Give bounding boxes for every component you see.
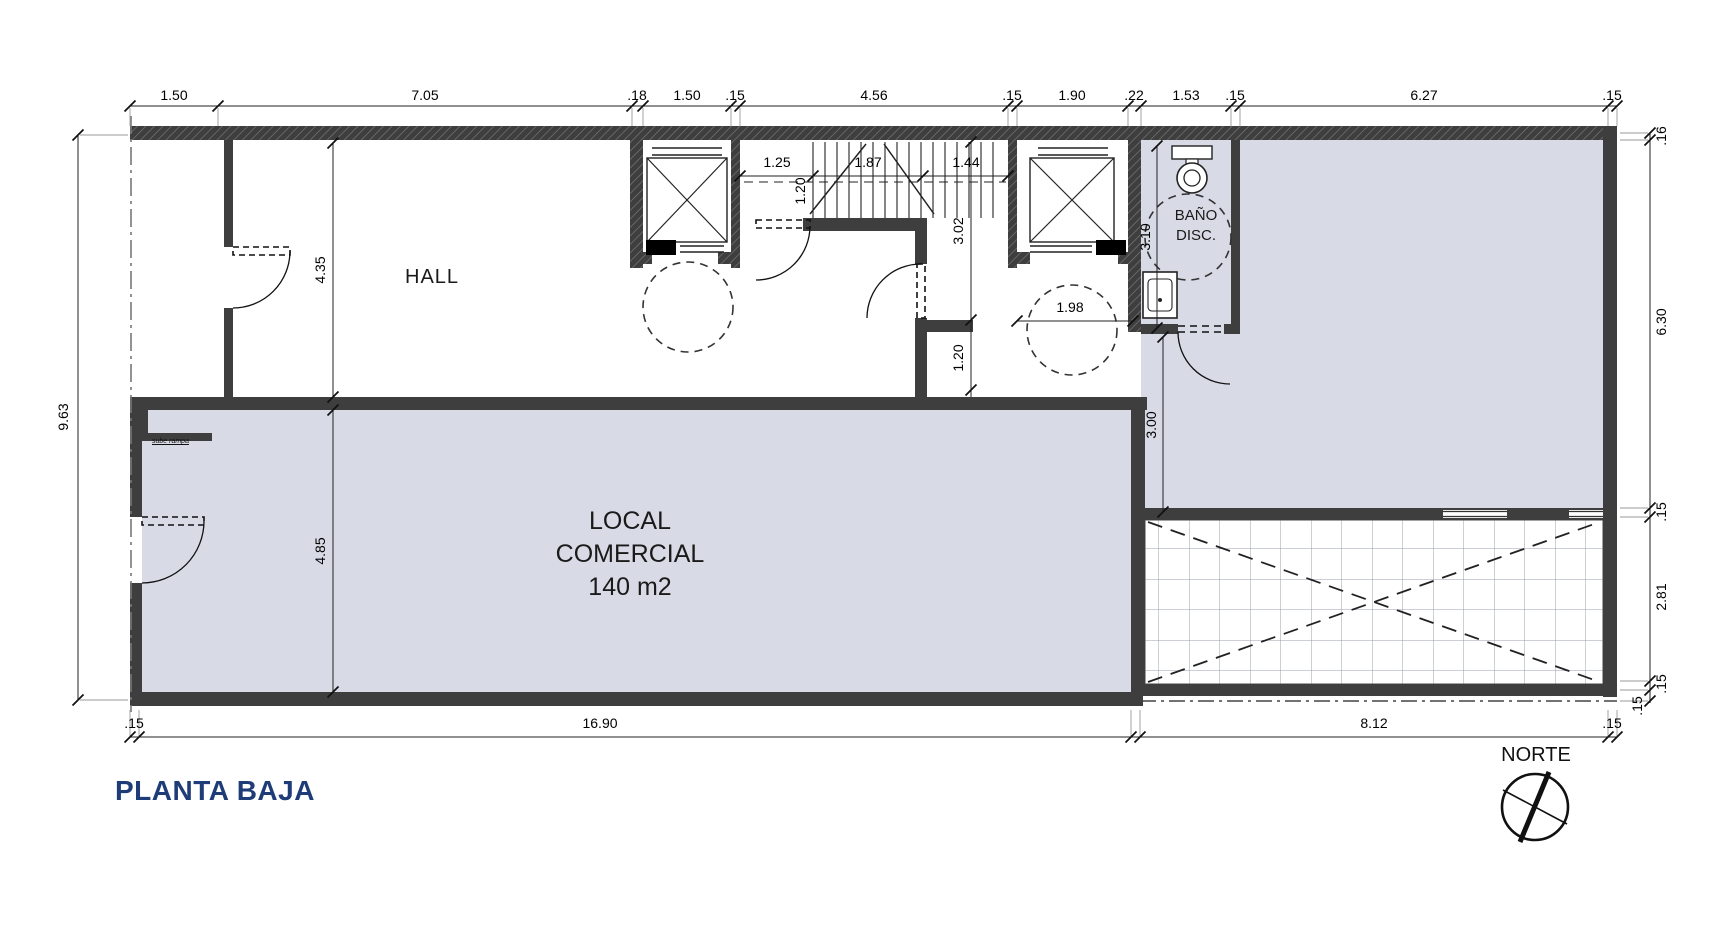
- floorplan-canvas: HALL LOCAL COMERCIAL 140 m2 BAÑO DISC. s…: [0, 0, 1732, 950]
- entry-step-note: sube rampa: [152, 438, 189, 445]
- local-label-line2: COMERCIAL: [510, 538, 750, 571]
- local-label-area: 140 m2: [510, 571, 750, 604]
- local-label-line1: LOCAL: [510, 505, 750, 538]
- plan-title: PLANTA BAJA: [115, 775, 315, 807]
- hall-room-label: HALL: [405, 266, 459, 289]
- north-compass-icon: [1502, 772, 1568, 842]
- bano-disc-label: BAÑO DISC.: [1156, 206, 1236, 246]
- local-comercial-label: LOCAL COMERCIAL 140 m2: [510, 505, 750, 604]
- elevator-2: [1030, 148, 1126, 255]
- north-label: NORTE: [1486, 744, 1586, 767]
- sink-icon: [1143, 272, 1177, 318]
- floorplan-drawing: [0, 0, 1732, 950]
- bano-label-line2: DISC.: [1156, 226, 1236, 246]
- bano-label-line1: BAÑO: [1156, 206, 1236, 226]
- elevator-1: [646, 148, 727, 255]
- staircase: [744, 142, 1006, 218]
